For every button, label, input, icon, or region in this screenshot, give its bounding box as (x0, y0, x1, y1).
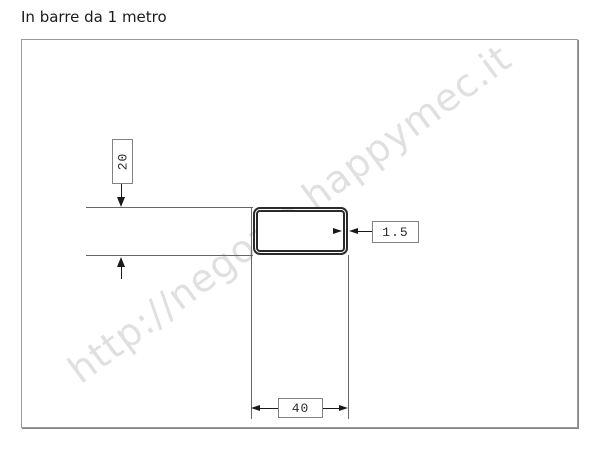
extension-line-right (348, 255, 349, 419)
extension-line-bottom (86, 255, 253, 256)
dim-height-leader-top (121, 184, 122, 197)
dim-thickness-label-box: 1.5 (372, 221, 419, 243)
arrowhead-left-icon (349, 228, 358, 234)
arrowhead-left-icon (251, 405, 260, 411)
page-title: In barre da 1 metro (21, 8, 167, 26)
arrowhead-down-icon (117, 197, 125, 207)
tube-inner-outline (256, 210, 345, 252)
dim-height-label-box: 20 (112, 139, 133, 184)
drawing-frame: http://negozio.happymec.it 20 1.5 40 (21, 39, 578, 428)
dim-width-line-left (260, 408, 278, 409)
extension-line-left (251, 207, 252, 419)
dim-thickness-leader-outer (358, 231, 372, 232)
dim-thickness-value: 1.5 (382, 225, 408, 240)
dim-width-value: 40 (292, 401, 310, 416)
extension-line-top (86, 207, 253, 208)
arrowhead-right-icon (333, 228, 342, 234)
arrowhead-right-icon (339, 405, 348, 411)
dim-width-line-right (323, 408, 339, 409)
dim-height-leader-bottom (121, 267, 122, 279)
arrowhead-up-icon (117, 257, 125, 267)
dim-width-label-box: 40 (278, 398, 323, 418)
dim-height-value: 20 (115, 153, 130, 171)
